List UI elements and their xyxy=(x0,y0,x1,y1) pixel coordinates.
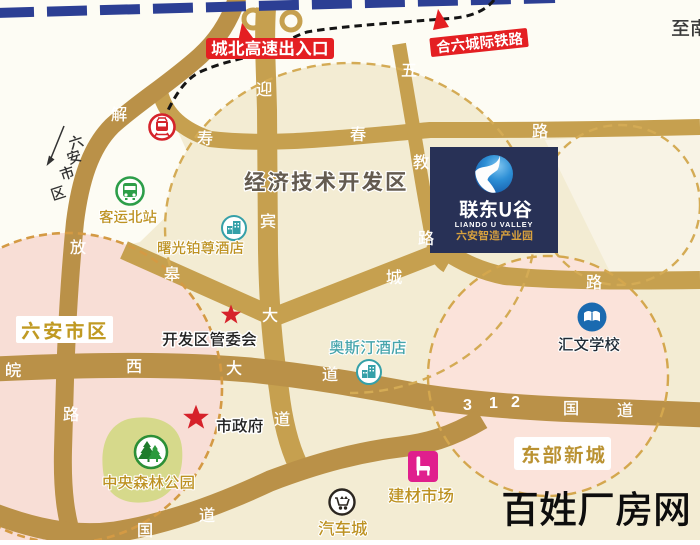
svg-text:2: 2 xyxy=(511,394,520,411)
svg-text:LIANDO U VALLEY: LIANDO U VALLEY xyxy=(455,220,533,229)
svg-text:3: 3 xyxy=(463,397,472,414)
svg-text:1: 1 xyxy=(489,395,498,412)
